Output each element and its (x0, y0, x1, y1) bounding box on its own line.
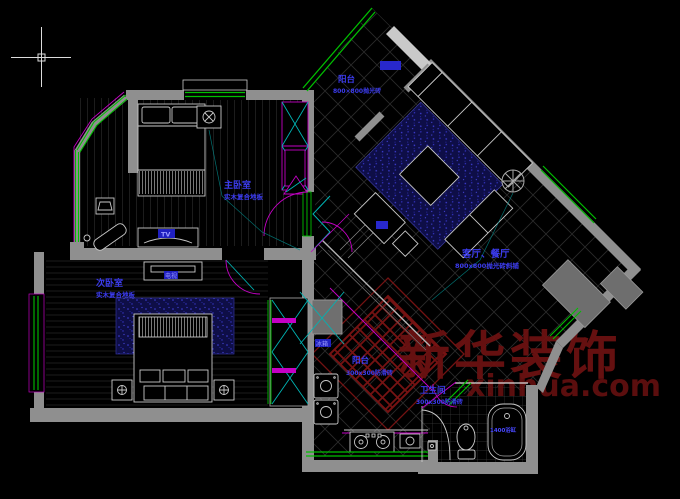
svg-text:冰箱: 冰箱 (316, 340, 328, 348)
cad-canvas[interactable]: 新华装饰 xinhua.com (0, 0, 680, 499)
label-bathroom-finish: 300x300防滑砖 (416, 398, 463, 406)
label-balcony-top-finish: 800×800抛光砖 (333, 87, 381, 95)
bed-blanket-hatch (139, 171, 204, 194)
pillow (172, 107, 200, 123)
door-bedroomA (303, 192, 307, 236)
label-balcony-bottom: 阳台 (352, 355, 370, 366)
window-box-top (183, 80, 247, 90)
cabinet (312, 300, 342, 334)
wardrobe-bedroomB (270, 298, 308, 406)
label-balcony-top: 阳台 (338, 74, 356, 85)
crosshair-cursor (11, 27, 71, 87)
label-living-dining: 客厅、餐厅 (461, 248, 510, 260)
svg-text:TV: TV (161, 231, 170, 239)
label-balcony-bottom-finish: 300x300防滑砖 (346, 369, 393, 377)
label-master-bedroom: 主卧室 (224, 179, 251, 191)
bay-window-bedroomB (29, 294, 44, 392)
blue-tag (380, 61, 401, 70)
svg-text:电视: 电视 (165, 272, 177, 280)
watermark-domain-text: xinhua.com (466, 369, 661, 404)
pillow (142, 107, 170, 123)
stool (84, 235, 90, 241)
label-second-bedroom: 次卧室 (96, 277, 123, 289)
cad-viewport: 新华装饰 xinhua.com (0, 0, 680, 499)
label-bathroom: 卫生间 (420, 385, 446, 396)
bathtub-tag: 1400浴缸 (490, 426, 517, 434)
label-second-bedroom-finish: 实木复合地板 (96, 290, 136, 299)
label-master-bedroom-finish: 实木复合地板 (224, 192, 264, 201)
blue-tag (376, 221, 388, 229)
ceiling-fan-icon (502, 170, 524, 192)
headboard-hatch (139, 317, 207, 337)
label-living-dining-finish: 800x800抛光砖斜铺 (455, 261, 519, 270)
